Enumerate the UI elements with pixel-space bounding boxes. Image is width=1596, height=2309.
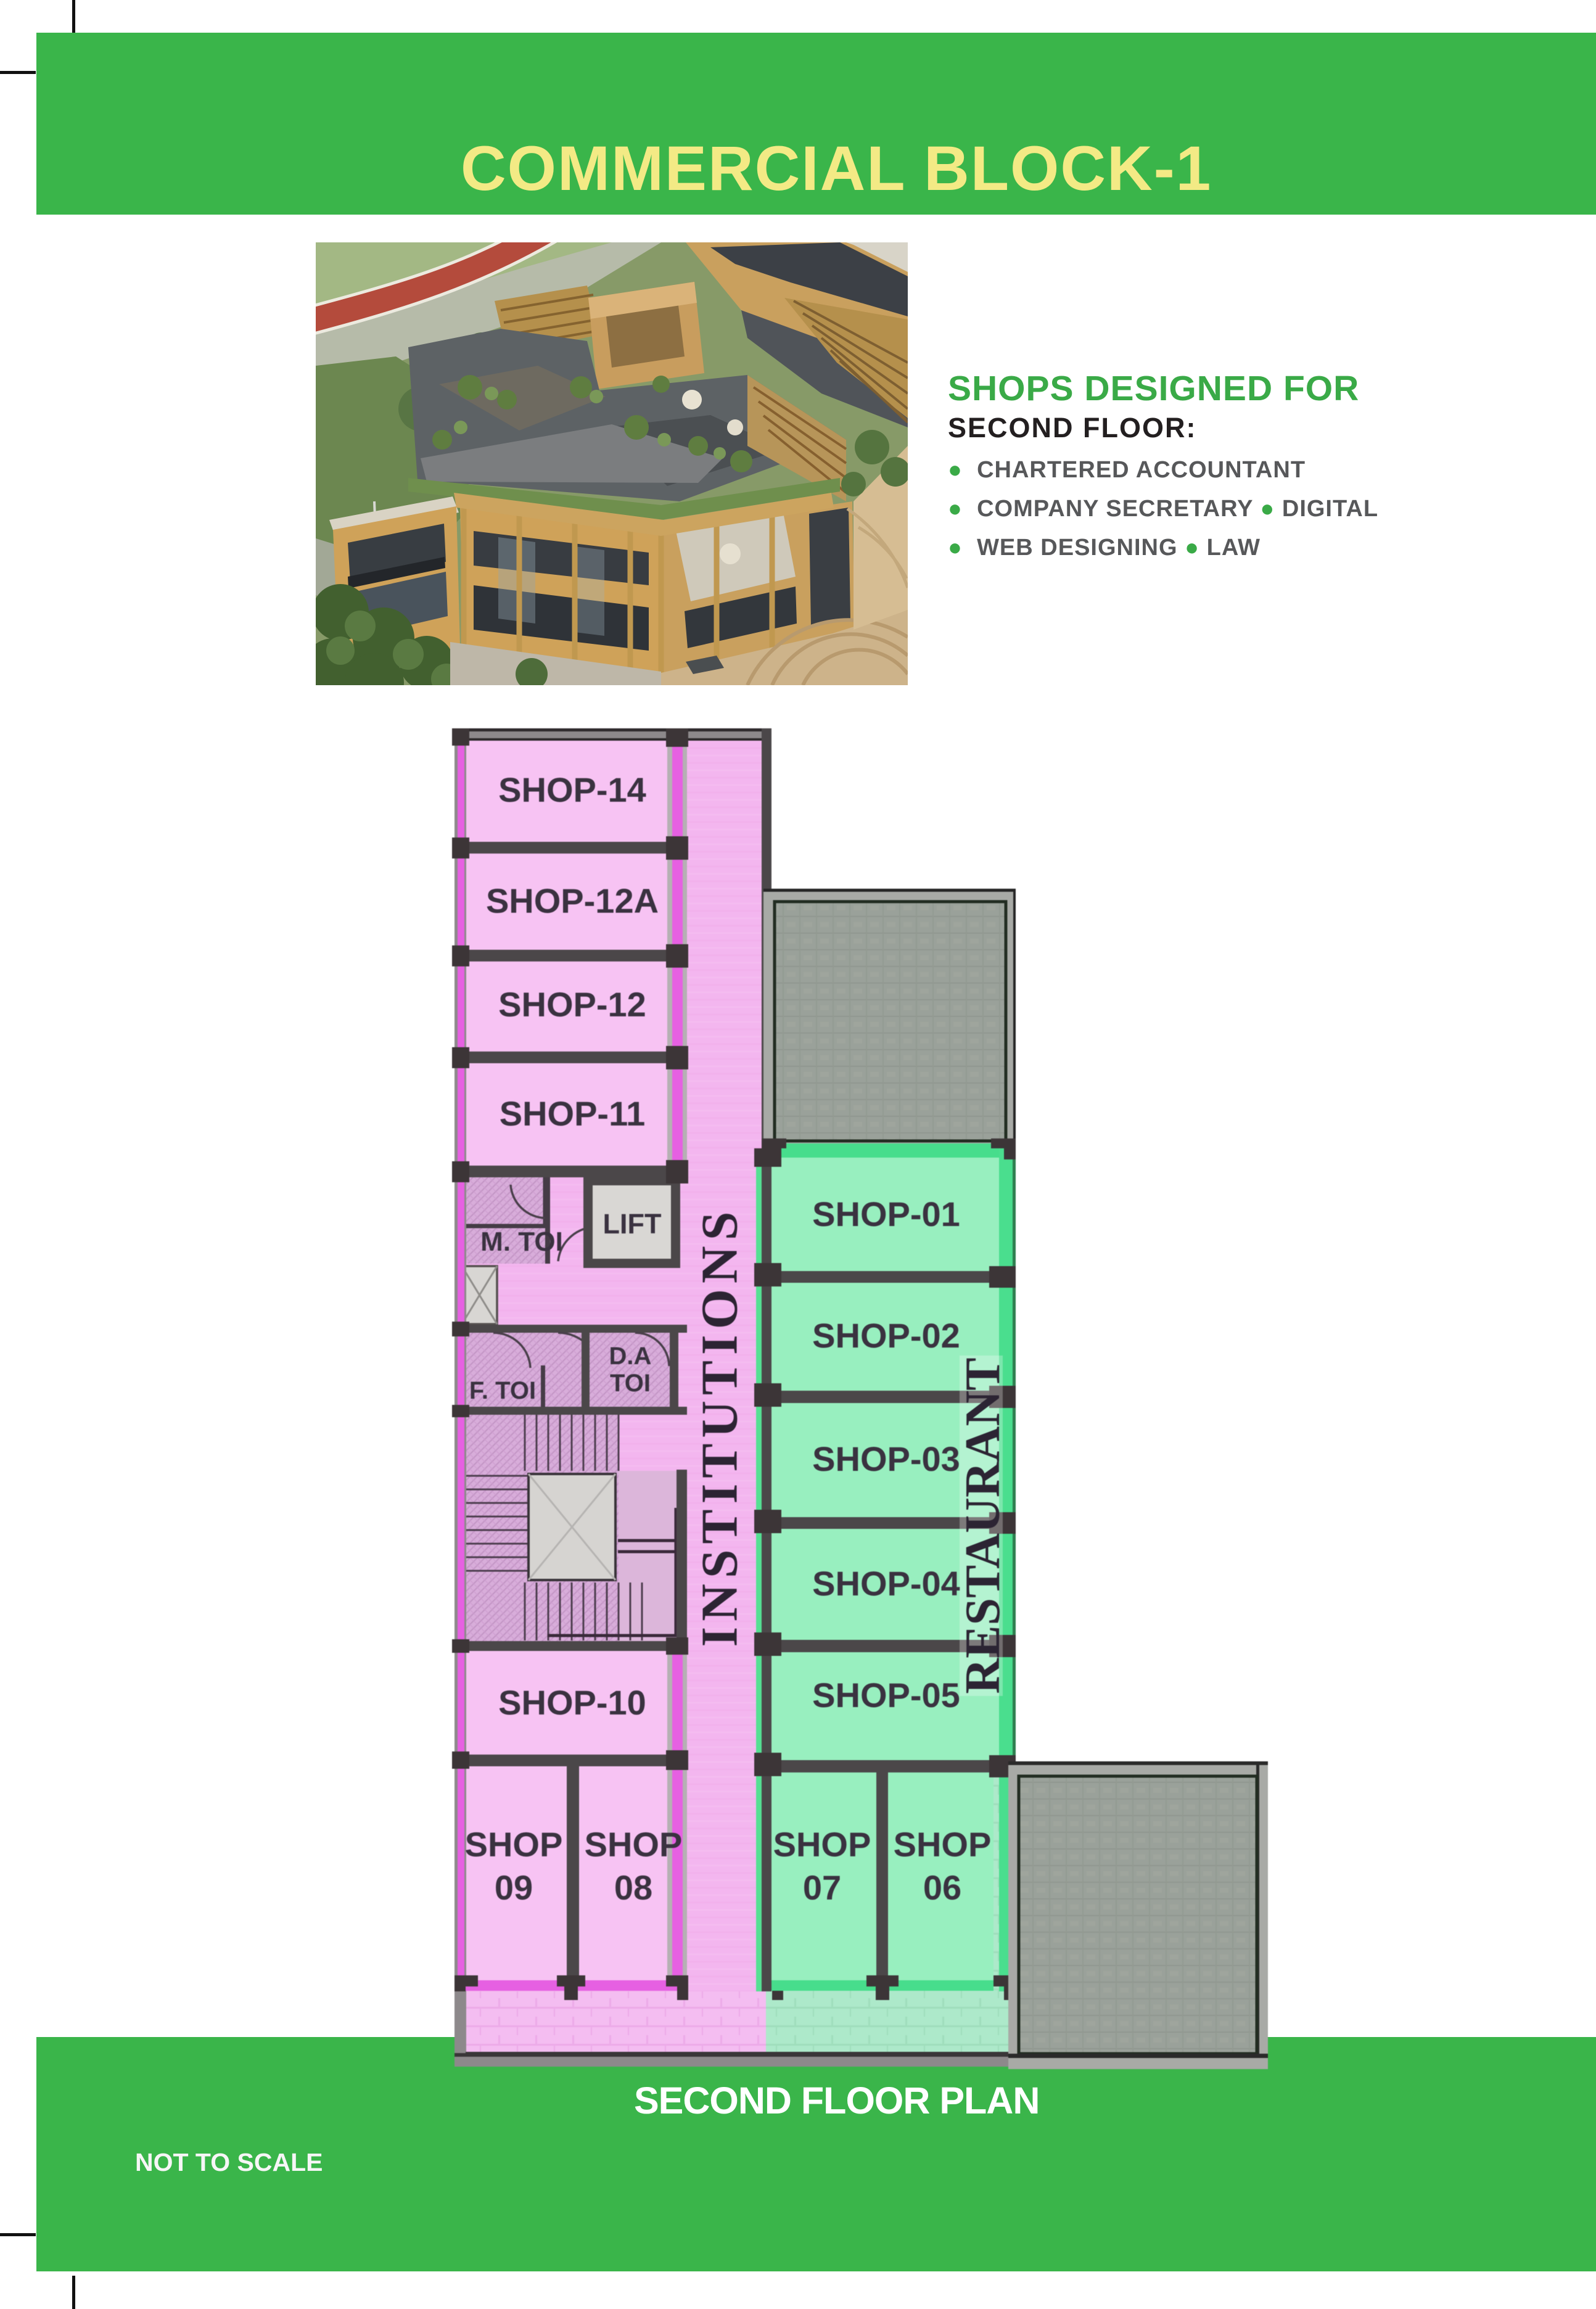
svg-text:SHOP-11: SHOP-11 (500, 1094, 646, 1133)
svg-text:SHOP-02: SHOP-02 (812, 1316, 960, 1355)
svg-text:INSTITUTIONS: INSTITUTIONS (691, 1206, 749, 1647)
svg-text:08: 08 (614, 1868, 652, 1907)
svg-text:06: 06 (923, 1868, 961, 1907)
svg-text:SHOP-04: SHOP-04 (812, 1564, 960, 1603)
svg-text:SHOP-14: SHOP-14 (498, 770, 646, 809)
svg-text:SHOP-03: SHOP-03 (812, 1439, 960, 1478)
svg-text:SHOP-12: SHOP-12 (498, 985, 646, 1024)
svg-text:SHOP: SHOP (894, 1825, 992, 1864)
svg-text:F. TOI: F. TOI (469, 1377, 536, 1404)
svg-text:SHOP: SHOP (773, 1825, 871, 1864)
svg-text:SHOP-12A: SHOP-12A (486, 881, 659, 920)
svg-text:LIFT: LIFT (603, 1208, 662, 1240)
svg-text:RESTAURANT: RESTAURANT (956, 1357, 1010, 1694)
svg-text:SHOP: SHOP (585, 1825, 683, 1864)
svg-text:09: 09 (495, 1868, 533, 1907)
svg-text:07: 07 (803, 1868, 841, 1907)
svg-text:SHOP: SHOP (465, 1825, 563, 1864)
svg-text:SHOP-05: SHOP-05 (812, 1676, 960, 1714)
svg-text:SHOP-10: SHOP-10 (498, 1683, 646, 1722)
svg-text:TOI: TOI (610, 1370, 651, 1397)
svg-text:M. TOI: M. TOI (480, 1227, 563, 1257)
svg-text:SHOP-01: SHOP-01 (812, 1195, 960, 1233)
svg-text:D.A: D.A (609, 1343, 652, 1370)
